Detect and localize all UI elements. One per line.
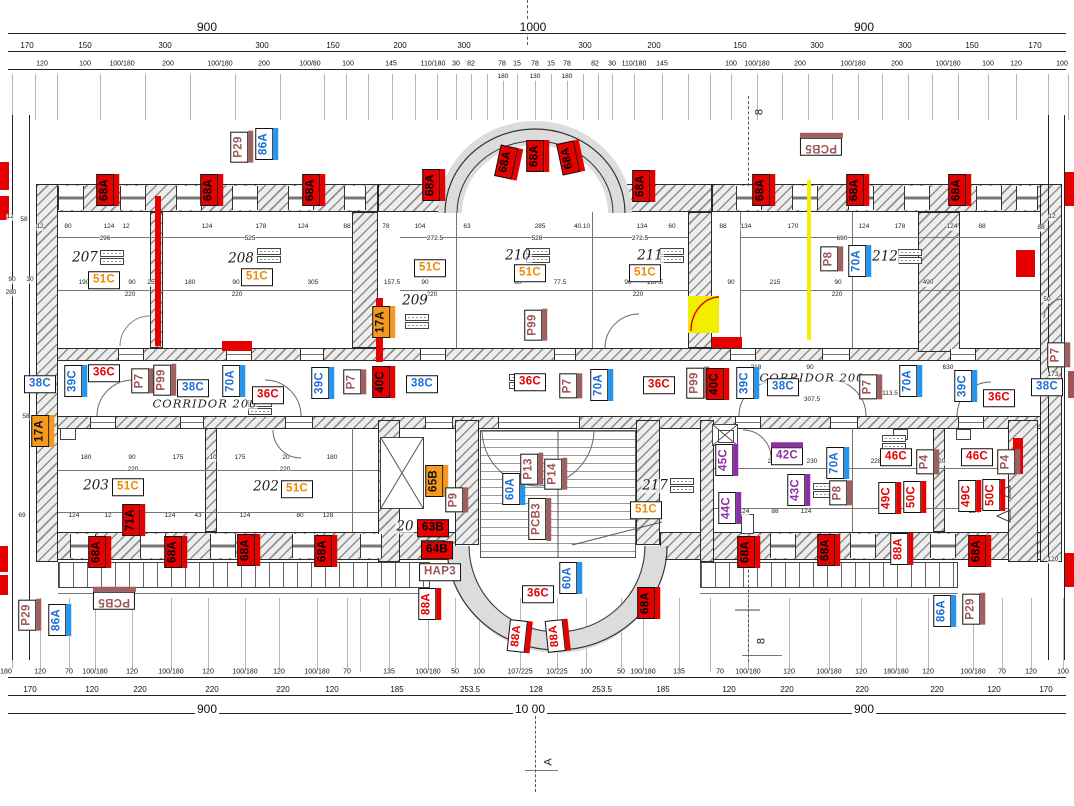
witness-line [503,74,504,120]
dimension-top-r3: 145 [654,61,670,68]
partition [740,212,741,348]
witness-line [908,74,909,120]
small-dimension: 88 [771,509,778,516]
small-dimension: 178 [895,224,906,231]
yellow-highlight-wall [807,180,811,340]
witness-line [829,598,830,672]
tag-50c: 50C [903,481,921,513]
dimension-top-r3: 30 [450,61,462,68]
window [120,186,146,210]
small-dimension: 88 [343,224,350,231]
dimension-top-r2: 170 [18,42,35,50]
tag-p4: P4 [916,450,934,475]
dimension-top-r3: 82 [465,61,477,68]
small-dimension: 175 [235,455,246,462]
dimension-bottom-r1: 100/180 [156,669,185,676]
witness-line [455,598,456,672]
small-dimension: 690 [837,236,848,243]
tag-pcb5: PCB5 [93,592,135,610]
window [58,186,84,210]
tag-36c: 36C [643,376,675,394]
small-dimension: 120 [1048,557,1059,564]
tag-51c: 51C [514,264,546,282]
dimension-bottom-r1: 70 [996,669,1008,676]
dimension-bottom-r2: 220 [778,686,795,694]
dimension-bottom-r1: 180 [0,669,14,676]
dimension-bottom-r1: 50 [449,669,461,676]
door-opening [735,417,761,428]
tag-p7: P7 [559,374,577,399]
tag-p4: P4 [997,450,1015,475]
dimension-bottom-r1: 100/180 [958,669,987,676]
elevator-shaft [380,437,424,509]
small-dimension: 296 [100,236,111,243]
tag-70a: 70A [848,245,866,277]
witness-line [1002,598,1003,672]
window [210,534,236,558]
tag-68a: 68A [96,174,114,206]
dimension-top-r2: 300 [156,42,173,50]
tag-17a: 17A [31,415,49,447]
tag-pcb3: PCB3 [528,498,546,540]
small-dimension: 104 [415,224,426,231]
dimension-top-r1: 1000 [518,21,549,33]
dim-line-bottom-1 [8,677,1066,678]
dimension-top-r3: 30 [606,61,618,68]
dimension-top-r3: 100/180 [933,61,962,68]
tag-p8: P8 [829,481,847,506]
tag-36c: 36C [252,386,284,404]
small-dimension: 170 [788,224,799,231]
door-opening [958,417,984,428]
tag-p14: P14 [544,458,562,489]
dimension-top-r4: 180 [560,74,575,81]
dimension-top-r3: 100/80 [297,61,322,68]
fixture [60,428,76,440]
witness-line [551,74,552,120]
tag-68a: 68A [526,140,544,172]
dimension-top-r1: 900 [195,21,219,33]
small-dimension: 220 [280,467,291,474]
witness-line [317,598,318,672]
small-dimension: 280 [6,290,17,297]
small-dimension: 124 [947,224,958,231]
tag-51c: 51C [112,478,144,496]
tag-68a: 68A [88,536,106,568]
tag-68a: 68A [737,536,755,568]
partial-tag-red [0,546,8,572]
tag-36c: 36C [522,585,554,603]
window [344,186,366,210]
dimension-bottom-r1: 120 [271,669,287,676]
window [930,534,956,558]
small-dimension: 90 [128,280,135,287]
tag-68a: 68A [302,174,320,206]
small-dimension: 10 [209,455,216,462]
spec-box [100,250,124,265]
witness-line [208,598,209,672]
small-dimension: 305 [308,280,319,287]
small-dimension: 80 [296,513,303,520]
small-dimension: 88 [1037,225,1044,232]
small-dimension: 124 [298,224,309,231]
tag-p7: P7 [1047,343,1065,368]
dimension-bottom-r1: 120 [781,669,797,676]
room-label-202: 202 [252,480,280,494]
small-dimension: 490 [923,280,934,287]
witness-line [389,598,390,672]
tag-40c: 40C [372,366,390,398]
dimension-bottom-r2: 120 [323,686,340,694]
tag-p99: P99 [686,367,704,398]
window [792,186,818,210]
witness-line [392,74,393,120]
witness-line [932,74,933,120]
small-dimension: 134 [637,224,648,231]
tag-p7: P7 [859,375,877,400]
tag-50c: 50C [982,479,1000,511]
dimension-bottom-r1: 50 [615,669,627,676]
small-dimension: 220 [633,292,644,299]
dimension-top-r3: 15 [511,61,523,68]
room-dim-line [400,290,688,291]
dimension-top-r2: 300 [455,42,472,50]
dimension-top-r3: 100 [77,61,93,68]
tag-36c: 36C [983,389,1015,407]
dimension-top-r3: 100 [980,61,996,68]
dimension-bottom-r1: 100/180 [628,669,657,676]
small-dimension: 220 [832,292,843,299]
small-dimension: 630 [943,365,954,372]
window [770,534,796,558]
dimension-bottom-r1: 100 [1055,669,1071,676]
dim-line-bottom-2 [8,695,1066,696]
dimension-top-r2: 150 [963,42,980,50]
small-dimension: 124 [240,513,251,520]
small-dimension: 113.5 [882,391,898,398]
dimension-top-r3: 120 [1008,61,1024,68]
dimension-top-r3: 200 [160,61,176,68]
tag-88a: 88A [890,533,908,565]
room-label-203: 203 [82,479,110,493]
witness-line [928,598,929,672]
small-dimension: 124 [859,224,870,231]
tag-36c: 36C [514,373,546,391]
window [976,186,1002,210]
witness-line [415,74,416,120]
witness-line [896,598,897,672]
dimension-top-r3: 100 [340,61,356,68]
tag-39c: 39C [954,370,972,402]
witness-line [324,74,325,120]
tag-17a: 17A [372,306,390,338]
small-dimension: 90 [232,280,239,287]
witness-line [100,74,101,120]
tag-68a: 68A [200,174,218,206]
small-dimension: 128 [323,513,334,520]
room-dim-line [58,290,352,291]
dimension-bottom-r1: 120 [124,669,140,676]
dim-line-left-1 [12,115,13,660]
partial-tag-red [1065,172,1074,206]
dimension-top-r3: 200 [889,61,905,68]
spec-box [405,314,429,329]
small-dimension: 307.5 [804,397,820,404]
witness-line [988,74,989,120]
small-dimension: 43 [194,513,201,520]
tag-51c: 51C [88,271,120,289]
room-label-208: 208 [227,252,255,266]
fixture [956,429,971,440]
tag-p29: P29 [962,593,980,624]
small-dimension: 12 [36,224,43,231]
spec-box [257,248,281,263]
window [850,534,876,558]
witness-line [12,74,13,120]
tag-68a: 68A [948,174,966,206]
dimension-bottom-r2: 120 [985,686,1002,694]
tag-65b: 65B [425,465,443,497]
fixture [718,430,734,443]
terrace-edge [700,593,958,594]
partial-tag-red [0,575,8,595]
tag-68a: 68A [494,145,518,180]
window [176,186,202,210]
tag-60a: 60A [559,562,577,594]
tag-70a: 70A [826,447,844,479]
room-label-212: 212 [871,250,899,264]
axis-marker-8: 8 [755,109,766,115]
dimension-bottom-r2: 220 [853,686,870,694]
fixture [741,514,754,534]
small-dimension: 63 [463,224,470,231]
dimension-top-r3: 110/180 [620,61,649,68]
dimension-bottom-r2: 120 [720,686,737,694]
small-dimension: 124 [104,224,115,231]
tag-42c: 42C [771,447,803,465]
dimension-bottom-r2: 170 [21,686,38,694]
tag-68a: 68A [314,535,332,567]
dimension-bottom-r2: 220 [274,686,291,694]
tag-49c: 49C [958,480,976,512]
room-label-210: 210 [504,249,532,263]
small-dimension: 58 [22,414,29,421]
small-dimension: 90 [834,280,841,287]
window [232,186,258,210]
tag-38c: 38C [1031,378,1063,396]
tag-63b: 63B [417,519,449,537]
axis-marker-a: A [544,758,555,765]
small-dimension: 90 [727,280,734,287]
door-opening [425,417,453,428]
witness-line [958,74,959,120]
witness-line [517,74,518,120]
dimension-top-r2: 200 [645,42,662,50]
tag-68a: 68A [817,534,835,566]
dimension-top-r3: 200 [256,61,272,68]
tag-44c: 44C [718,492,736,524]
yellow-highlight-area [688,296,719,333]
partial-tag-maroon [1068,371,1074,398]
dimension-top-r3: 100/180 [742,61,771,68]
tag-46c: 46C [961,448,993,466]
dim-line-top-3 [8,69,1066,70]
tag-38c: 38C [24,375,56,393]
dimension-bottom-r3: 10 00 [513,703,547,715]
witness-line [679,598,680,672]
small-dimension: 58 [20,217,27,224]
small-dimension: 78 [382,224,389,231]
tag-51c: 51C [630,501,662,519]
room-label-209: 209 [401,294,429,308]
tag-51c: 51C [414,259,446,277]
small-dimension: 77.5 [554,280,567,287]
window [1016,186,1038,210]
corridor-label-1: CORRIDOR 200 [153,398,258,410]
small-dimension: 285 [535,224,546,231]
partition [456,212,457,348]
tag-70a: 70A [899,365,917,397]
tag-60a: 60A [502,473,520,505]
partition [352,428,353,532]
dimension-bottom-r2: 120 [83,686,100,694]
dimension-bottom-r2: 253.5 [458,686,482,694]
witness-line [710,598,711,672]
axis-tick [742,655,782,656]
witness-line [662,74,663,120]
witness-line [612,74,613,120]
small-dimension: 124 [801,509,812,516]
dimension-top-r2: 300 [576,42,593,50]
dimension-bottom-r2: 170 [1037,686,1054,694]
witness-line [858,74,859,120]
witness-line [456,74,457,120]
small-dimension: 220 [128,467,139,474]
dimension-top-r2: 200 [391,42,408,50]
tag-hap3: HAP3 [419,563,461,581]
wall-corridor-top [36,348,1062,361]
dimension-bottom-r1: 135 [671,669,687,676]
small-dimension: 528 [532,236,543,243]
small-dimension: 272.5 [427,236,443,243]
small-dimension: 12 [1048,214,1055,221]
small-dimension: 90 [8,277,15,284]
small-dimension: 180 [327,455,338,462]
witness-line [145,74,146,120]
small-dimension: 20 [282,455,289,462]
spec-box [670,478,694,493]
tag-51c: 51C [241,268,273,286]
small-dimension: 180 [185,280,196,287]
dimension-top-r2: 170 [1026,42,1043,50]
room-label-207: 207 [71,251,99,265]
small-dimension: 50 [1043,297,1050,304]
small-dimension: 525 [245,236,256,243]
witness-line [861,598,862,672]
small-dimension: 124 [202,224,213,231]
witness-line [171,598,172,672]
witness-line [882,74,883,120]
witness-line [789,598,790,672]
tag-p7: P7 [131,369,149,394]
witness-line [190,74,191,120]
tag-p13: P13 [520,453,538,484]
dimension-bottom-r1: 100/180 [80,669,109,676]
floorplan-canvas: P2986APCB568A68A68A68A68A68A68A68A68A68A… [0,0,1074,806]
small-dimension: 88 [978,224,985,231]
partition [852,428,853,532]
dimension-top-r3: 100 [723,61,739,68]
small-dimension: 220 [125,292,136,299]
door-opening [90,417,116,428]
wall-bay-left [455,420,479,545]
dimension-top-r2: 150 [731,42,748,50]
witness-line [368,74,369,120]
room-dim-line [58,470,378,471]
partition [852,212,853,348]
dimension-top-r3: 100/180 [107,61,136,68]
small-dimension: 40.10 [574,224,590,231]
small-dimension: 124 [165,513,176,520]
dimension-top-r3: 82 [589,61,601,68]
witness-line [35,74,36,120]
door-opening [730,349,756,360]
small-dimension: 180 [81,455,92,462]
dimension-bottom-r1: 100/180 [413,669,442,676]
wall-top-center-right [614,184,712,212]
small-dimension: 60 [668,224,675,231]
tag-p99: P99 [153,364,171,395]
dim-line-top-2 [8,51,1066,52]
witness-line [710,74,711,120]
dimension-top-r3: 200 [792,61,808,68]
dimension-bottom-r1: 100 [471,669,487,676]
dimension-bottom-r2: 220 [928,686,945,694]
small-dimension: 90 [421,280,428,287]
witness-line [782,74,783,120]
dimension-top-r3: 100 [1054,61,1070,68]
witness-line [621,598,622,672]
dimension-top-r3: 100/180 [205,61,234,68]
room-dim-line [714,468,1008,469]
door-opening [554,349,576,360]
window [140,534,166,558]
dimension-bottom-r3: 900 [195,703,219,715]
small-dimension: 69 [18,513,25,520]
small-dimension: 80 [64,224,71,231]
dimension-bottom-r2: 185 [654,686,671,694]
tag-68a: 68A [164,536,182,568]
tag-38c: 38C [177,379,209,397]
tag-71a: 71A [122,504,140,536]
tag-p8: P8 [820,247,838,272]
section-mark [525,770,558,771]
small-dimension: 12 [104,513,111,520]
small-dimension: 25 [147,280,154,287]
tag-45c: 45C [715,444,733,476]
tag-88a: 88A [545,619,566,653]
dimension-bottom-r1: 70 [63,669,75,676]
tag-68a: 68A [846,174,864,206]
dimension-bottom-r1: 120 [920,669,936,676]
witness-line [471,74,472,120]
dimension-top-r1: 900 [852,21,876,33]
dimension-top-r2: 300 [253,42,270,50]
tag-68a: 68A [752,174,770,206]
tag-68a: 68A [237,534,255,566]
partial-tag-red [0,162,9,190]
tag-p9: P9 [445,488,463,513]
